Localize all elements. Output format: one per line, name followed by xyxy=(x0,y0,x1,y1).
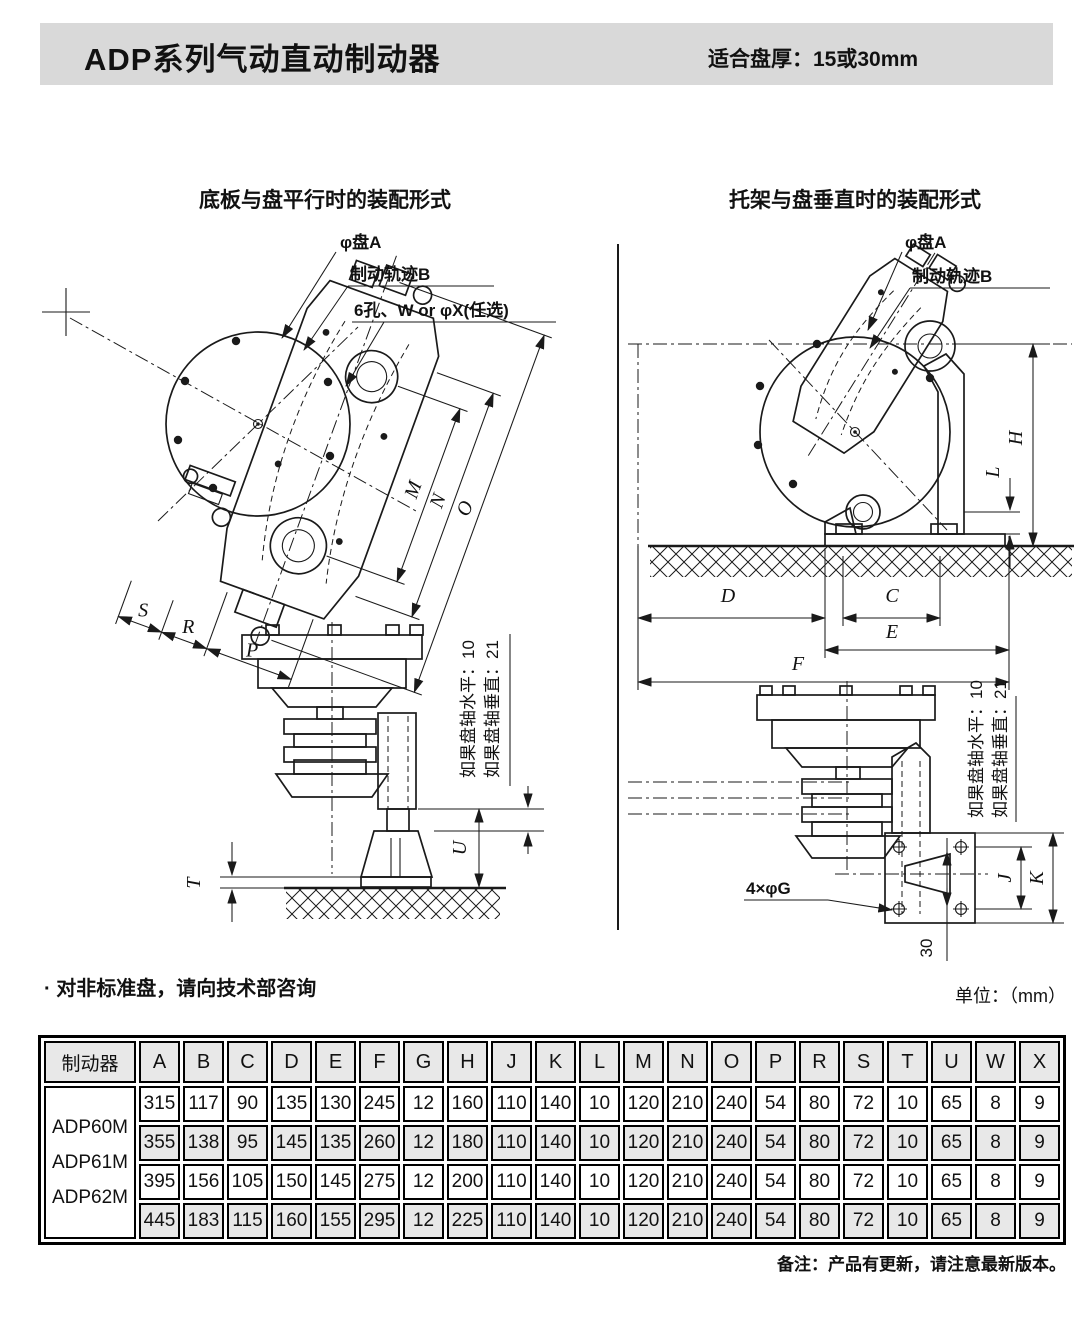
column-header: X xyxy=(1019,1041,1060,1083)
left-technical-drawing: M N O S xyxy=(36,226,614,963)
value-cell: 8 xyxy=(975,1125,1016,1161)
value-cell: 10 xyxy=(887,1125,928,1161)
value-cell: 9 xyxy=(1019,1203,1060,1239)
value-cell: 200 xyxy=(447,1164,488,1200)
value-cell: 72 xyxy=(843,1125,884,1161)
value-cell: 240 xyxy=(711,1086,752,1122)
value-cell: 120 xyxy=(623,1164,664,1200)
value-cell: 160 xyxy=(447,1086,488,1122)
table-header-row: 制动器 ABCDEFGHJKLMNOPRSTUWX xyxy=(44,1041,1060,1083)
svg-text:4×φG: 4×φG xyxy=(746,879,791,898)
svg-text:N: N xyxy=(425,489,451,512)
column-header: L xyxy=(579,1041,620,1083)
value-cell: 8 xyxy=(975,1164,1016,1200)
column-header: T xyxy=(887,1041,928,1083)
value-cell: 110 xyxy=(491,1086,532,1122)
value-cell: 183 xyxy=(183,1203,224,1239)
page-title: ADP系列气动直动制动器 xyxy=(84,34,440,79)
value-cell: 120 xyxy=(623,1203,664,1239)
column-header: F xyxy=(359,1041,400,1083)
value-cell: 65 xyxy=(931,1164,972,1200)
value-cell: 10 xyxy=(887,1164,928,1200)
footer-note: 备注：产品有更新，请注意最新版本。 xyxy=(777,1250,1066,1275)
left-axis-notes: 如果盘轴水平：10 如果盘轴垂直：21 xyxy=(459,634,510,786)
dim-SRP: S R P xyxy=(116,556,314,687)
dim-H: H xyxy=(952,344,1050,546)
table-row: 3951561051501452751220011014010120210240… xyxy=(44,1164,1060,1200)
value-cell: 150 xyxy=(271,1164,312,1200)
value-cell: 65 xyxy=(931,1203,972,1239)
value-cell: 155 xyxy=(315,1203,356,1239)
note-axis-vertical: 如果盘轴垂直：21 xyxy=(991,680,1010,818)
value-cell: 95 xyxy=(227,1125,268,1161)
value-cell: 10 xyxy=(887,1203,928,1239)
model-name: ADP60M xyxy=(46,1110,134,1145)
ground-hatch xyxy=(286,889,500,919)
right-figure-title: 托架与盘垂直时的装配形式 xyxy=(620,184,1090,214)
spec-table: 制动器 ABCDEFGHJKLMNOPRSTUWX ADP60MADP61MAD… xyxy=(38,1035,1066,1245)
value-cell: 245 xyxy=(359,1086,400,1122)
value-cell: 12 xyxy=(403,1086,444,1122)
value-cell: 54 xyxy=(755,1125,796,1161)
value-cell: 140 xyxy=(535,1203,576,1239)
callout-disc-a: φ盘A xyxy=(905,232,946,252)
value-cell: 140 xyxy=(535,1086,576,1122)
table-row: ADP60MADP61MADP62M3151179013513024512160… xyxy=(44,1086,1060,1122)
right-callouts: φ盘A 制动轨迹B xyxy=(868,232,1050,348)
value-cell: 275 xyxy=(359,1164,400,1200)
value-cell: 10 xyxy=(887,1086,928,1122)
note-axis-vertical: 如果盘轴垂直：21 xyxy=(483,640,502,778)
left-side-view: T U 如果盘轴水平：10 如果盘轴垂直：21 xyxy=(183,622,544,922)
left-callouts: φ盘A 制动轨迹B 6孔、W or φX(任选) xyxy=(282,232,556,386)
value-cell: 117 xyxy=(183,1086,224,1122)
column-header: W xyxy=(975,1041,1016,1083)
value-cell: 115 xyxy=(227,1203,268,1239)
value-cell: 210 xyxy=(667,1086,708,1122)
bracket-base xyxy=(825,534,1005,546)
value-cell: 105 xyxy=(227,1164,268,1200)
right-axis-notes: 如果盘轴水平：10 如果盘轴垂直：21 xyxy=(967,680,1016,822)
value-cell: 240 xyxy=(711,1203,752,1239)
value-cell: 445 xyxy=(139,1203,180,1239)
value-cell: 180 xyxy=(447,1125,488,1161)
value-cell: 54 xyxy=(755,1164,796,1200)
value-cell: 65 xyxy=(931,1086,972,1122)
value-cell: 8 xyxy=(975,1203,1016,1239)
value-cell: 145 xyxy=(271,1125,312,1161)
value-cell: 9 xyxy=(1019,1125,1060,1161)
value-cell: 140 xyxy=(535,1164,576,1200)
column-header: A xyxy=(139,1041,180,1083)
value-cell: 80 xyxy=(799,1164,840,1200)
value-cell: 10 xyxy=(579,1164,620,1200)
column-header: S xyxy=(843,1041,884,1083)
callout-flange-holes: 4×φG xyxy=(744,879,892,910)
svg-text:C: C xyxy=(885,585,899,607)
svg-text:M: M xyxy=(400,477,427,502)
value-cell: 65 xyxy=(931,1125,972,1161)
table-row: 4451831151601552951222511014010120210240… xyxy=(44,1203,1060,1239)
nonstandard-disc-note: · 对非标准盘，请向技术部咨询 xyxy=(44,972,316,1001)
figure-divider-line xyxy=(617,244,619,930)
value-cell: 210 xyxy=(667,1164,708,1200)
svg-text:P: P xyxy=(245,639,258,661)
column-header: O xyxy=(711,1041,752,1083)
dim-N: N xyxy=(356,373,501,620)
value-cell: 110 xyxy=(491,1203,532,1239)
value-cell: 225 xyxy=(447,1203,488,1239)
svg-text:H: H xyxy=(1005,429,1027,446)
value-cell: 54 xyxy=(755,1086,796,1122)
column-header: J xyxy=(491,1041,532,1083)
value-cell: 80 xyxy=(799,1086,840,1122)
value-cell: 120 xyxy=(623,1086,664,1122)
value-cell: 260 xyxy=(359,1125,400,1161)
header-bar: ADP系列气动直动制动器 适合盘厚：15或30mm xyxy=(40,23,1053,85)
value-cell: 12 xyxy=(403,1203,444,1239)
callout-disc-a: φ盘A xyxy=(340,232,381,252)
datasheet-page: ADP系列气动直动制动器 适合盘厚：15或30mm 底板与盘平行时的装配形式 托… xyxy=(0,0,1091,1335)
unit-note: 单位：（mm） xyxy=(955,982,1066,1008)
value-cell: 355 xyxy=(139,1125,180,1161)
lower-clamp xyxy=(171,464,243,528)
value-cell: 72 xyxy=(843,1086,884,1122)
column-header: K xyxy=(535,1041,576,1083)
column-header: U xyxy=(931,1041,972,1083)
model-names-cell: ADP60MADP61MADP62M xyxy=(44,1086,136,1239)
svg-text:S: S xyxy=(138,600,148,622)
value-cell: 72 xyxy=(843,1203,884,1239)
value-cell: 130 xyxy=(315,1086,356,1122)
value-cell: 160 xyxy=(271,1203,312,1239)
column-header: E xyxy=(315,1041,356,1083)
spec-table-body: ADP60MADP61MADP62M3151179013513024512160… xyxy=(44,1086,1060,1239)
svg-text:U: U xyxy=(449,839,471,855)
value-cell: 140 xyxy=(535,1125,576,1161)
model-name: ADP61M xyxy=(46,1145,134,1180)
value-cell: 80 xyxy=(799,1203,840,1239)
value-cell: 12 xyxy=(403,1164,444,1200)
axis-cross-mark xyxy=(42,288,90,336)
dim-J: J xyxy=(975,847,1032,909)
callout-track-b: 制动轨迹B xyxy=(912,266,992,286)
spec-table-wrap: 制动器 ABCDEFGHJKLMNOPRSTUWX ADP60MADP61MAD… xyxy=(38,1035,1066,1245)
svg-text:D: D xyxy=(720,585,736,607)
right-technical-drawing: φ盘A 制动轨迹B H L xyxy=(620,226,1091,963)
value-cell: 54 xyxy=(755,1203,796,1239)
value-cell: 90 xyxy=(227,1086,268,1122)
callout-holes: 6孔、W or φX(任选) xyxy=(354,300,509,320)
value-cell: 10 xyxy=(579,1203,620,1239)
value-cell: 240 xyxy=(711,1125,752,1161)
right-side-view: 4×φG 30 J K 如果盘轴水平：10 如 xyxy=(628,680,1064,961)
svg-text:J: J xyxy=(994,872,1016,882)
value-cell: 10 xyxy=(579,1086,620,1122)
table-row: 3551389514513526012180110140101202102405… xyxy=(44,1125,1060,1161)
right-top-view: φ盘A 制动轨迹B H L xyxy=(628,230,1074,694)
value-cell: 145 xyxy=(315,1164,356,1200)
value-cell: 210 xyxy=(667,1203,708,1239)
value-cell: 295 xyxy=(359,1203,400,1239)
value-cell: 110 xyxy=(491,1164,532,1200)
value-cell: 80 xyxy=(799,1125,840,1161)
value-cell: 120 xyxy=(623,1125,664,1161)
value-cell: 110 xyxy=(491,1125,532,1161)
value-cell: 8 xyxy=(975,1086,1016,1122)
svg-text:E: E xyxy=(885,621,898,643)
value-cell: 10 xyxy=(579,1125,620,1161)
svg-text:K: K xyxy=(1026,870,1048,886)
left-figure-title: 底板与盘平行时的装配形式 xyxy=(40,184,610,214)
value-cell: 135 xyxy=(315,1125,356,1161)
value-cell: 72 xyxy=(843,1164,884,1200)
callout-track-b: 制动轨迹B xyxy=(350,264,430,284)
dim-M: M xyxy=(327,383,468,584)
value-cell: 240 xyxy=(711,1164,752,1200)
value-cell: 12 xyxy=(403,1125,444,1161)
svg-text:R: R xyxy=(181,616,194,638)
note-axis-horizontal: 如果盘轴水平：10 xyxy=(967,680,986,818)
value-cell: 138 xyxy=(183,1125,224,1161)
value-cell: 135 xyxy=(271,1086,312,1122)
value-cell: 9 xyxy=(1019,1086,1060,1122)
value-cell: 395 xyxy=(139,1164,180,1200)
model-name: ADP62M xyxy=(46,1180,134,1215)
value-cell: 156 xyxy=(183,1164,224,1200)
value-cell: 9 xyxy=(1019,1164,1060,1200)
column-header: C xyxy=(227,1041,268,1083)
column-header: N xyxy=(667,1041,708,1083)
note-axis-horizontal: 如果盘轴水平：10 xyxy=(459,640,478,778)
value-cell: 210 xyxy=(667,1125,708,1161)
column-header: D xyxy=(271,1041,312,1083)
disc-bolt-holes xyxy=(754,340,934,488)
column-header: R xyxy=(799,1041,840,1083)
flange-bolt-holes xyxy=(891,839,969,917)
column-header: H xyxy=(447,1041,488,1083)
value-cell: 315 xyxy=(139,1086,180,1122)
column-header: M xyxy=(623,1041,664,1083)
svg-text:F: F xyxy=(791,653,805,675)
svg-text:L: L xyxy=(982,466,1004,478)
svg-text:T: T xyxy=(183,876,205,889)
disc-thickness-note: 适合盘厚：15或30mm xyxy=(708,43,918,73)
svg-text:O: O xyxy=(452,498,478,519)
column-header: G xyxy=(403,1041,444,1083)
column-header: P xyxy=(755,1041,796,1083)
svg-text:30: 30 xyxy=(917,939,936,958)
column-header-brake: 制动器 xyxy=(44,1041,136,1083)
dim-U: U xyxy=(418,786,544,887)
column-header: B xyxy=(183,1041,224,1083)
